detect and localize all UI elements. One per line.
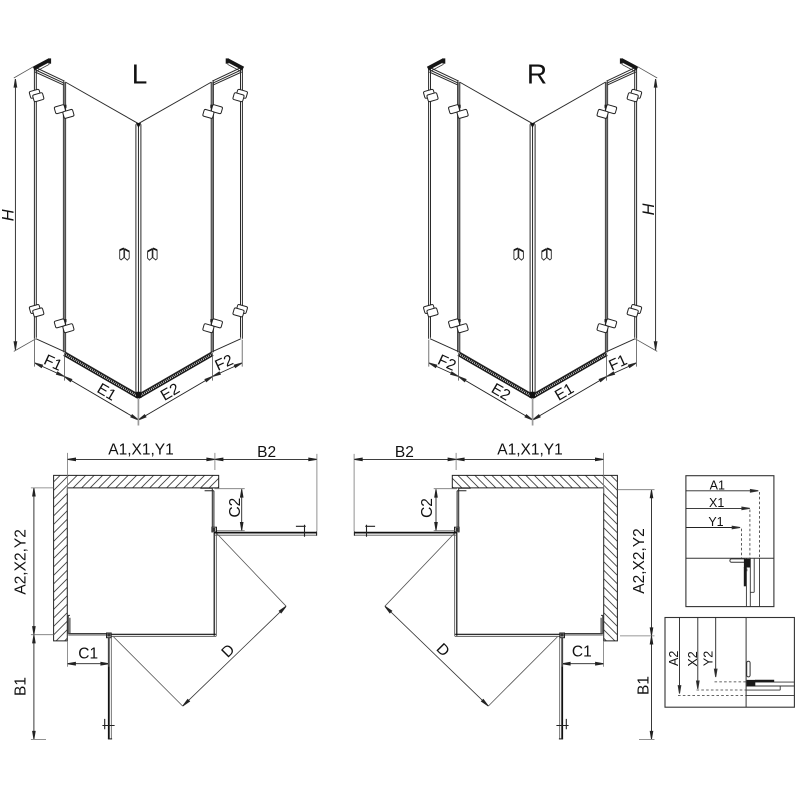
svg-text:A1,X1,Y1: A1,X1,Y1	[497, 441, 563, 458]
svg-text:A1: A1	[710, 478, 725, 492]
svg-text:R: R	[527, 58, 547, 89]
svg-text:H: H	[0, 209, 17, 221]
svg-text:Y2: Y2	[702, 651, 716, 666]
svg-text:B2: B2	[395, 444, 414, 461]
svg-text:H: H	[640, 203, 658, 215]
svg-text:A2: A2	[667, 651, 681, 666]
svg-text:Y1: Y1	[708, 515, 723, 529]
svg-text:X2: X2	[686, 651, 700, 666]
svg-text:B1: B1	[636, 676, 653, 695]
svg-text:A1,X1,Y1: A1,X1,Y1	[108, 441, 174, 458]
svg-text:B1: B1	[13, 677, 30, 696]
svg-text:C1: C1	[78, 645, 98, 662]
svg-text:F1: F1	[606, 352, 630, 375]
svg-text:X1: X1	[709, 496, 724, 510]
svg-text:A2,X2,Y2: A2,X2,Y2	[13, 529, 30, 595]
svg-text:F2: F2	[435, 352, 459, 375]
svg-text:C2: C2	[419, 498, 436, 518]
svg-text:D: D	[218, 641, 238, 661]
svg-text:D: D	[433, 640, 453, 660]
svg-text:C1: C1	[572, 644, 592, 661]
svg-text:C2: C2	[227, 498, 244, 518]
svg-text:F2: F2	[212, 352, 236, 375]
svg-text:F1: F1	[41, 352, 65, 375]
svg-text:B2: B2	[257, 444, 276, 461]
svg-text:L: L	[132, 58, 148, 89]
svg-text:A2,X2,Y2: A2,X2,Y2	[631, 528, 648, 594]
